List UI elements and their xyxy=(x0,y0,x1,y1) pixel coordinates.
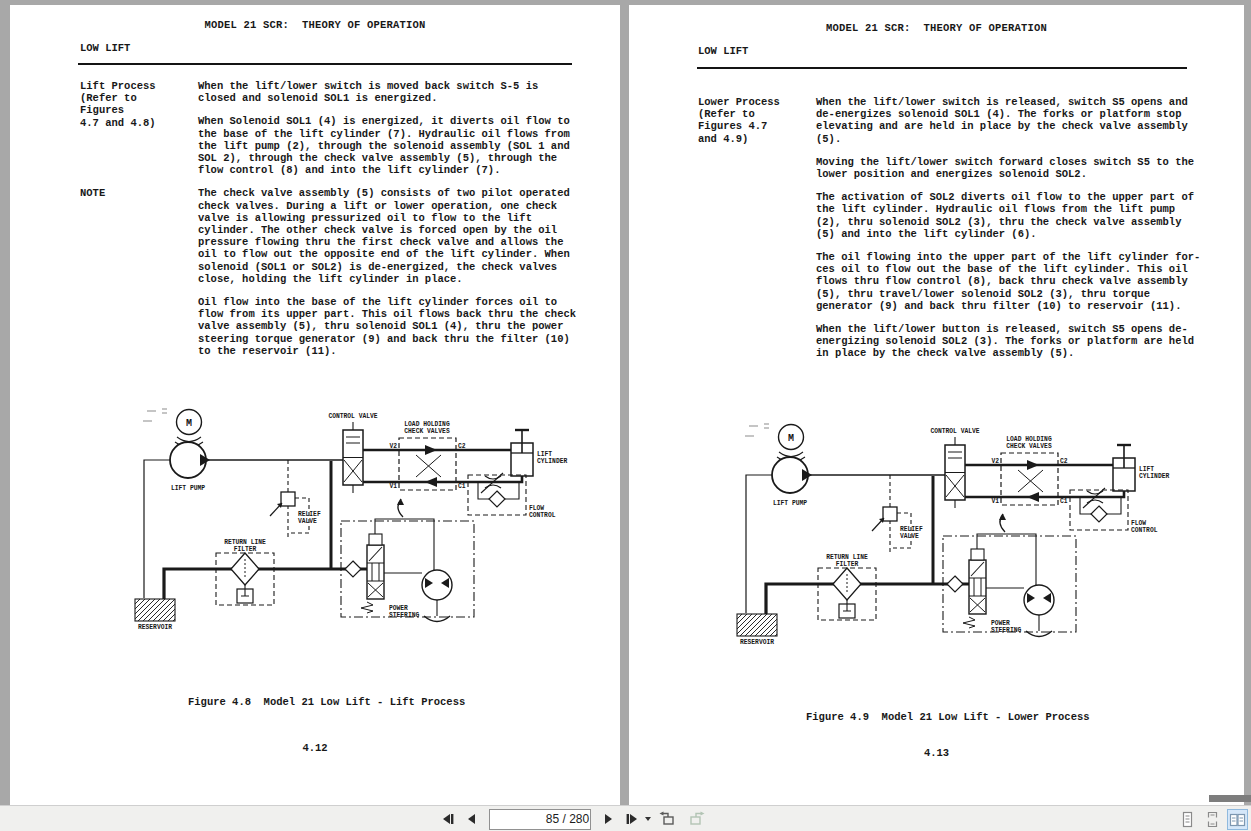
label-c2: C2 xyxy=(458,443,466,450)
return-line xyxy=(164,569,367,599)
label-flow-control-2: CONTROL xyxy=(1131,527,1158,534)
label-motor: M xyxy=(186,418,192,429)
paragraph: Moving the lift/lower switch forward clo… xyxy=(816,156,1206,180)
stray-marks xyxy=(143,409,167,421)
check-valve-symbol xyxy=(345,561,361,577)
next-page-icon xyxy=(602,813,615,825)
paragraph: When Solenoid SOL1 (4) is energized, it … xyxy=(198,115,582,176)
label-v2: V2 xyxy=(991,458,999,465)
label-lift-cylinder: LIFT xyxy=(1139,466,1154,473)
block-label: NOTE xyxy=(80,187,198,368)
page-layout-controls xyxy=(1177,807,1248,831)
continuous-view-icon xyxy=(1204,811,1221,828)
reservoir-symbol xyxy=(737,614,777,636)
paragraph: Oil flow into the base of the lift cylin… xyxy=(198,296,582,357)
label-return-filter: RETURN LINE xyxy=(224,539,266,546)
label-flow-control: FLOW xyxy=(529,505,544,512)
previous-view-icon xyxy=(659,811,677,827)
lift-cylinder-symbol xyxy=(1113,445,1135,491)
page-indicator-combobox[interactable] xyxy=(489,809,591,830)
suction-line xyxy=(144,460,170,598)
power-steering-valve-symbol xyxy=(361,534,384,613)
load-holding-check-valves-symbol xyxy=(399,438,456,490)
label-flow-control-2: CONTROL xyxy=(529,512,556,519)
label-power-steering-2: STEERING xyxy=(991,627,1021,634)
flow-control-symbol xyxy=(1070,488,1128,530)
label-v1: V1 xyxy=(991,498,999,505)
label-return-filter: RETURN LINE xyxy=(826,554,868,561)
document-page-right: MODEL 21 SCR: THEORY OF OPERATION LOW LI… xyxy=(629,5,1244,805)
section-rule xyxy=(78,63,572,65)
next-view-icon xyxy=(687,811,705,827)
label-power-steering-2: STEERING xyxy=(389,612,419,619)
document-page-left: MODEL 21 SCR: THEORY OF OPERATION LOW LI… xyxy=(10,5,620,805)
previous-page-icon xyxy=(465,813,478,825)
label-power-steering: POWER xyxy=(389,605,408,612)
page-number: 4.12 xyxy=(10,742,620,754)
last-page-button[interactable] xyxy=(622,808,643,830)
block-label: Lower Process (Refer to Figures 4.7 and … xyxy=(698,96,816,371)
pdf-viewer: MODEL 21 SCR: THEORY OF OPERATION LOW LI… xyxy=(0,0,1251,831)
label-lift-cylinder: LIFT xyxy=(537,451,552,458)
label-c2: C2 xyxy=(1060,458,1068,465)
paragraph: When the lift/lower button is released, … xyxy=(816,323,1206,360)
text-block: Lower Process (Refer to Figures 4.7 and … xyxy=(698,96,1206,371)
page-number: 4.13 xyxy=(629,747,1244,759)
scrollbar-corner xyxy=(1209,795,1251,802)
label-check-valves: CHECK VALVES xyxy=(1006,443,1052,450)
hydraulic-schematic: M LIFT PUMP CONTROL VALVE LOAD HOLDING C… xyxy=(131,403,581,668)
label-relief-valve: RELIEF xyxy=(900,526,923,533)
reservoir-symbol xyxy=(135,599,175,621)
label-lift-cylinder-2: CYLINDER xyxy=(537,458,567,465)
first-page-icon xyxy=(440,813,455,825)
return-line-filter-symbol xyxy=(818,568,876,620)
return-line-filter-symbol xyxy=(216,553,274,605)
paragraph: The check valve assembly (5) consists of… xyxy=(198,187,582,285)
lift-cylinder-symbol xyxy=(511,430,533,476)
section-rule xyxy=(697,67,1187,69)
page-header: MODEL 21 SCR: THEORY OF OPERATION xyxy=(629,22,1244,34)
label-c1: C1 xyxy=(1060,498,1068,505)
page-body: Lower Process (Refer to Figures 4.7 and … xyxy=(698,96,1206,371)
load-holding-check-valves-symbol xyxy=(1001,453,1058,505)
pump-symbol xyxy=(170,442,210,478)
previous-view-button[interactable] xyxy=(656,808,680,830)
continuous-view-button[interactable] xyxy=(1202,809,1223,830)
relief-valve-symbol xyxy=(270,460,309,538)
relief-valve-symbol xyxy=(872,475,911,553)
pump-symbol xyxy=(772,457,812,493)
label-c1: C1 xyxy=(458,483,466,490)
label-load-holding: LOAD HOLDING xyxy=(1006,436,1052,443)
label-reservoir: RESERVOIR xyxy=(740,639,774,646)
block-text: When the lift/lower switch is released, … xyxy=(816,96,1206,371)
chevron-down-icon xyxy=(645,817,651,821)
label-lift-pump: LIFT PUMP xyxy=(171,485,205,492)
page-header: MODEL 21 SCR: THEORY OF OPERATION xyxy=(10,19,620,31)
next-view-button[interactable] xyxy=(684,808,708,830)
label-return-filter-2: FILTER xyxy=(234,546,257,553)
control-valve-symbol xyxy=(343,422,363,493)
control-valve-symbol xyxy=(945,437,965,508)
hydraulic-schematic: M LIFT PUMP CONTROL VALVE LOAD HOLDING C… xyxy=(733,418,1183,683)
label-reservoir: RESERVOIR xyxy=(138,624,172,631)
paragraph: The oil flowing into the upper part of t… xyxy=(816,251,1206,312)
paragraph: When the lift/lower switch is released, … xyxy=(816,96,1206,145)
text-block: Lift Process (Refer to Figures 4.7 and 4… xyxy=(80,80,582,187)
return-line xyxy=(766,584,969,614)
page-dropdown-caret[interactable] xyxy=(645,810,651,829)
flow-control-symbol xyxy=(468,473,526,515)
first-page-button[interactable] xyxy=(437,808,458,830)
torque-generator-symbol xyxy=(1024,585,1054,615)
label-v1: V1 xyxy=(389,483,397,490)
label-relief-valve-2: VALVE xyxy=(900,533,919,540)
block-text: The check valve assembly (5) consists of… xyxy=(198,187,582,368)
label-lift-pump: LIFT PUMP xyxy=(773,500,807,507)
facing-view-button[interactable] xyxy=(1227,809,1248,830)
page-body: Lift Process (Refer to Figures 4.7 and 4… xyxy=(80,80,582,368)
label-control-valve: CONTROL VALVE xyxy=(930,428,979,435)
label-v2: V2 xyxy=(389,443,397,450)
block-label: Lift Process (Refer to Figures 4.7 and 4… xyxy=(80,80,198,187)
figure-caption: Figure 4.9 Model 21 Low Lift - Lower Pro… xyxy=(806,711,1090,723)
figure-caption: Figure 4.8 Model 21 Low Lift - Lift Proc… xyxy=(188,696,465,708)
check-valve-symbol xyxy=(947,576,963,592)
single-page-view-button[interactable] xyxy=(1177,809,1198,830)
power-steering-valve-symbol xyxy=(963,549,986,628)
section-title: LOW LIFT xyxy=(80,42,130,54)
paragraph: When the lift/lower switch is moved back… xyxy=(198,80,582,104)
next-page-button[interactable] xyxy=(599,808,618,830)
label-relief-valve: RELIEF xyxy=(298,511,321,518)
label-check-valves: CHECK VALVES xyxy=(404,428,450,435)
label-lift-cylinder-2: CYLINDER xyxy=(1139,473,1169,480)
label-motor: M xyxy=(788,433,794,444)
single-page-view-icon xyxy=(1179,811,1196,828)
previous-page-button[interactable] xyxy=(462,808,481,830)
torque-generator-symbol xyxy=(422,570,452,600)
suction-line xyxy=(746,475,772,613)
stray-marks xyxy=(745,424,769,436)
text-block: NOTE The check valve assembly (5) consis… xyxy=(80,187,582,368)
label-relief-valve-2: VALVE xyxy=(298,518,317,525)
page-navigation xyxy=(437,807,708,831)
label-load-holding: LOAD HOLDING xyxy=(404,421,450,428)
label-power-steering: POWER xyxy=(991,620,1010,627)
label-flow-control: FLOW xyxy=(1131,520,1146,527)
viewer-toolbar xyxy=(0,805,1251,831)
label-return-filter-2: FILTER xyxy=(836,561,859,568)
facing-view-icon xyxy=(1229,811,1246,828)
paragraph: The activation of SOL2 diverts oil flow … xyxy=(816,191,1206,240)
label-control-valve: CONTROL VALVE xyxy=(328,413,377,420)
last-page-icon xyxy=(625,813,640,825)
block-text: When the lift/lower switch is moved back… xyxy=(198,80,582,187)
section-title: LOW LIFT xyxy=(698,45,748,57)
